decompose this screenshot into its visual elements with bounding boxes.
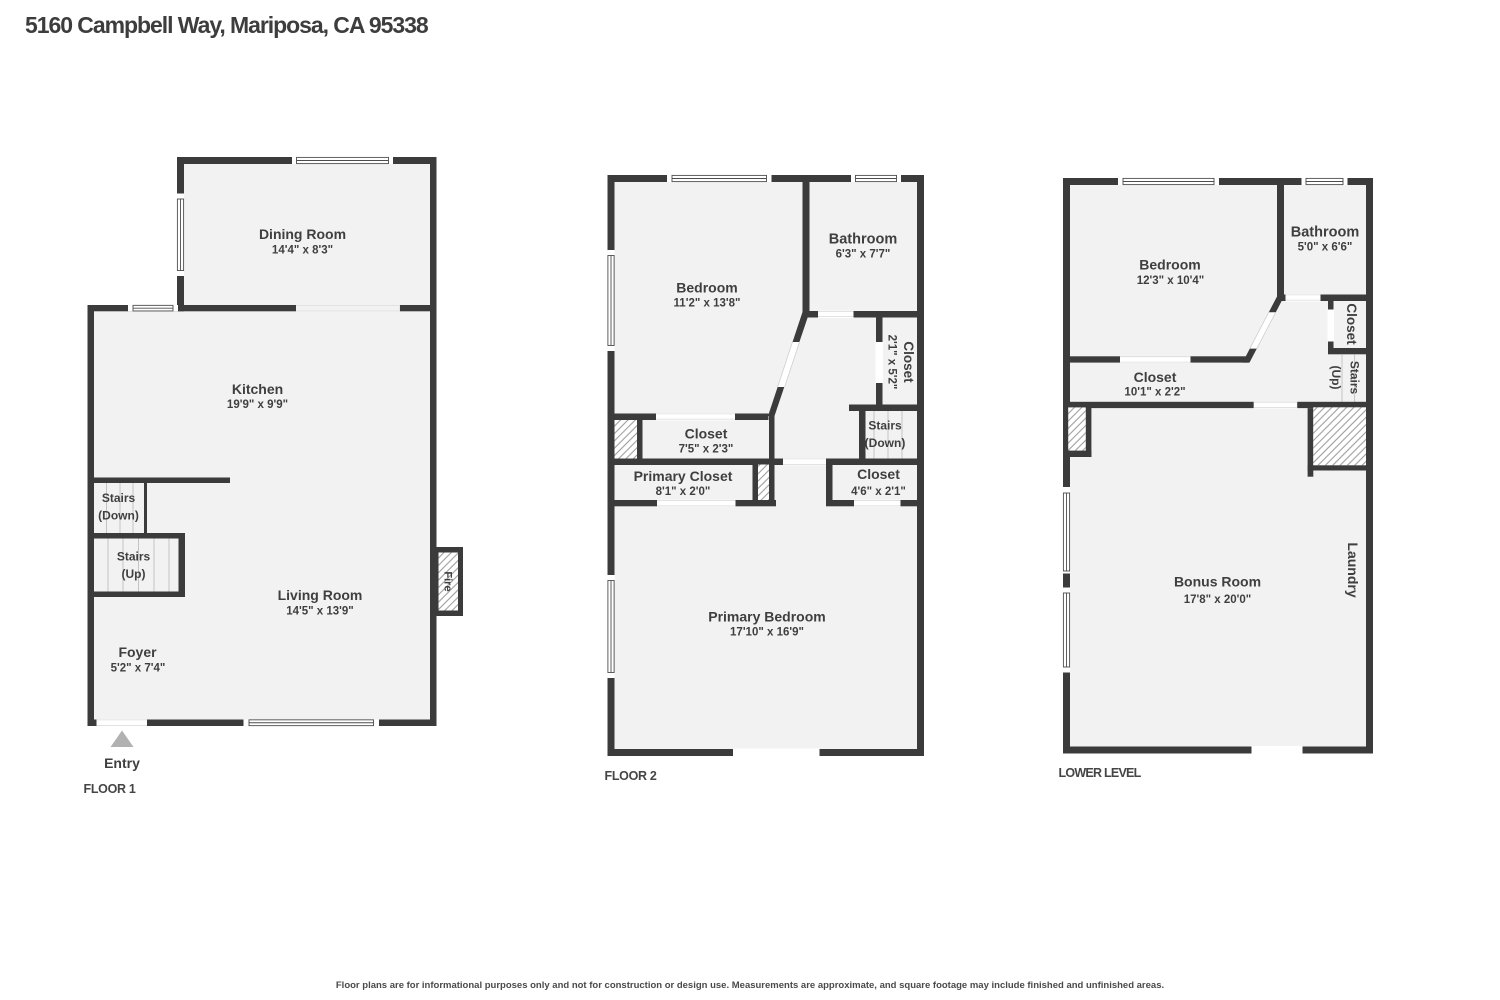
- svg-text:7'5" x 2'3": 7'5" x 2'3": [679, 444, 734, 456]
- svg-text:Laundry: Laundry: [1345, 542, 1361, 597]
- svg-text:(Down): (Down): [98, 509, 139, 523]
- svg-text:17'10" x 16'9": 17'10" x 16'9": [730, 627, 804, 639]
- svg-text:Closet: Closet: [1134, 369, 1177, 385]
- svg-text:19'9" x 9'9": 19'9" x 9'9": [227, 399, 288, 411]
- svg-text:Closet: Closet: [685, 426, 728, 442]
- svg-text:5160 Campbell Way, Mariposa, C: 5160 Campbell Way, Mariposa, CA 95338: [25, 12, 429, 38]
- svg-text:6'3" x 7'7": 6'3" x 7'7": [836, 249, 891, 261]
- svg-text:5'0" x 6'6": 5'0" x 6'6": [1298, 242, 1353, 254]
- svg-text:Kitchen: Kitchen: [232, 381, 283, 397]
- svg-text:(Up): (Up): [122, 567, 146, 581]
- svg-text:Bathroom: Bathroom: [829, 232, 897, 248]
- svg-text:(Up): (Up): [1329, 366, 1343, 390]
- svg-text:Closet: Closet: [1344, 303, 1359, 345]
- svg-text:Dining Room: Dining Room: [259, 226, 346, 242]
- svg-text:Living Room: Living Room: [278, 587, 363, 603]
- svg-text:Primary Closet: Primary Closet: [634, 468, 733, 484]
- svg-text:14'5" x 13'9": 14'5" x 13'9": [286, 606, 354, 618]
- svg-text:(Down): (Down): [865, 436, 906, 450]
- svg-text:Bonus Room: Bonus Room: [1174, 574, 1261, 590]
- svg-text:Entry: Entry: [104, 755, 140, 771]
- svg-text:Stairs: Stairs: [868, 419, 902, 433]
- svg-text:4'6" x 2'1": 4'6" x 2'1": [851, 486, 906, 498]
- svg-text:Stairs: Stairs: [1348, 361, 1362, 395]
- svg-text:11'2" x 13'8": 11'2" x 13'8": [674, 298, 741, 310]
- svg-text:FLOOR 2: FLOOR 2: [605, 769, 657, 783]
- svg-text:Fire: Fire: [442, 571, 454, 591]
- svg-text:5'2" x 7'4": 5'2" x 7'4": [111, 663, 166, 675]
- svg-text:Bathroom: Bathroom: [1291, 225, 1359, 241]
- svg-text:LOWER LEVEL: LOWER LEVEL: [1059, 766, 1142, 780]
- svg-text:Primary Bedroom: Primary Bedroom: [708, 609, 825, 625]
- svg-text:2'1" x 5'2": 2'1" x 5'2": [886, 335, 898, 390]
- svg-text:Stairs: Stairs: [102, 491, 136, 505]
- svg-text:10'1" x 2'2": 10'1" x 2'2": [1124, 387, 1185, 399]
- svg-text:Bedroom: Bedroom: [676, 280, 737, 296]
- svg-text:17'8" x 20'0": 17'8" x 20'0": [1184, 594, 1252, 606]
- svg-text:Closet: Closet: [901, 341, 916, 383]
- svg-text:Floor plans are for informatio: Floor plans are for informational purpos…: [336, 980, 1164, 991]
- svg-text:FLOOR 1: FLOOR 1: [84, 782, 136, 796]
- svg-text:Closet: Closet: [857, 466, 900, 482]
- svg-text:12'3" x 10'4": 12'3" x 10'4": [1137, 275, 1205, 287]
- svg-text:14'4" x 8'3": 14'4" x 8'3": [272, 245, 333, 257]
- svg-text:Bedroom: Bedroom: [1139, 257, 1200, 273]
- svg-text:8'1" x 2'0": 8'1" x 2'0": [656, 486, 711, 498]
- svg-text:Foyer: Foyer: [118, 644, 157, 660]
- svg-text:Stairs: Stairs: [117, 550, 151, 564]
